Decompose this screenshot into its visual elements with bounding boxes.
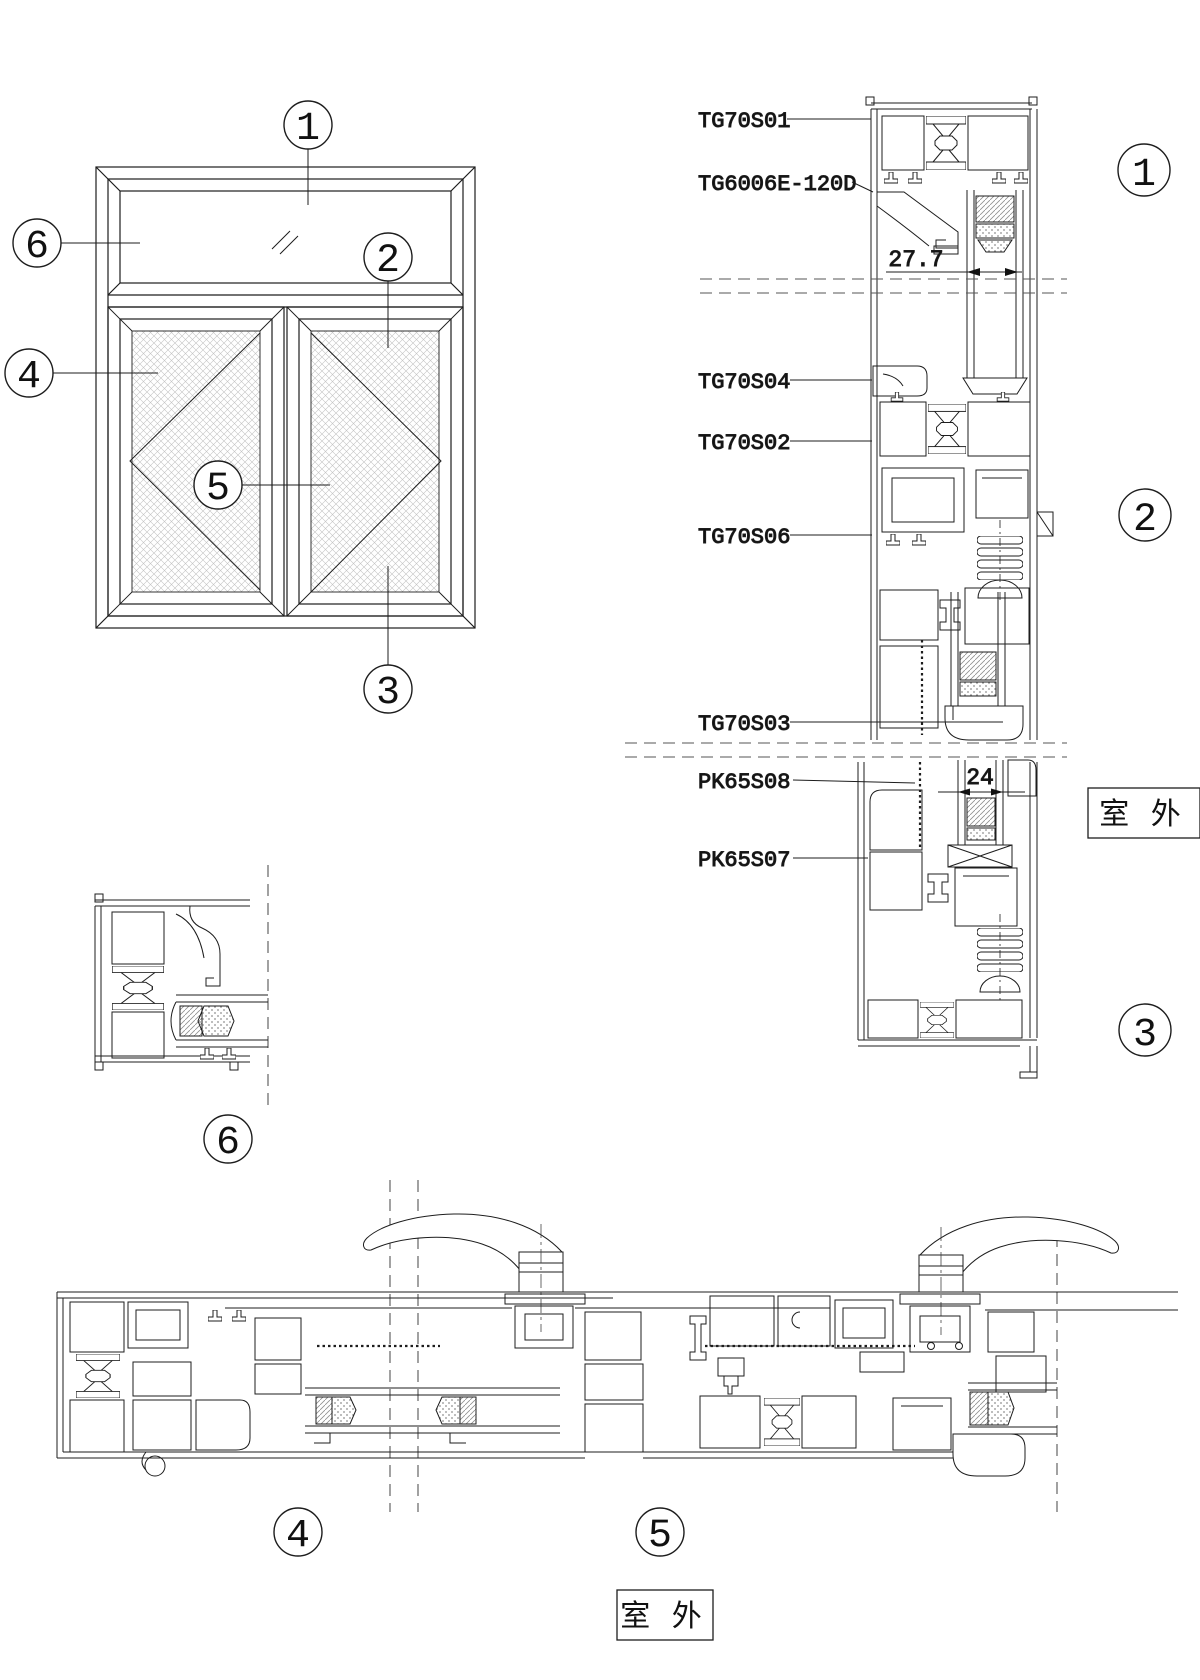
part-label-tg70s03: TG70S03 bbox=[698, 712, 790, 737]
part-label-pk65s07: PK65S07 bbox=[698, 848, 790, 873]
bowtie-connector-2 bbox=[928, 874, 948, 902]
section-callout-1: 1 bbox=[1132, 153, 1156, 198]
window-elevation: 1 6 2 4 5 3 bbox=[5, 101, 475, 716]
drip-profile bbox=[877, 192, 958, 248]
hsec-callout-4: 4 bbox=[286, 1514, 310, 1559]
callout-5: 5 bbox=[206, 467, 230, 512]
section-callout-3: 3 bbox=[1133, 1013, 1157, 1058]
espag-roller bbox=[145, 1456, 165, 1476]
outdoor-label-right: 室 外 bbox=[1099, 797, 1187, 832]
callout-4: 4 bbox=[17, 355, 41, 400]
cover-profile bbox=[1008, 760, 1036, 796]
part-label-tg70s01: TG70S01 bbox=[698, 109, 790, 134]
part-labels: TG70S01 TG6006E-120D TG70S04 TG70S02 TG7… bbox=[698, 109, 1003, 873]
part-label-tg70s02: TG70S02 bbox=[698, 431, 790, 456]
dim-24-text: 24 bbox=[966, 765, 994, 791]
hsec-center-mullion bbox=[585, 1296, 856, 1452]
hsec-bottom-rail bbox=[953, 1434, 1025, 1476]
vsec-annotations: 室 外 1 2 3 bbox=[1088, 144, 1200, 1058]
part-label-tg6006e-120d: TG6006E-120D bbox=[698, 172, 856, 197]
break-lines-lower bbox=[625, 743, 1067, 757]
callout-6: 6 bbox=[25, 225, 49, 270]
vertical-section: TG70S01 TG6006E-120D TG70S04 TG70S02 TG7… bbox=[625, 97, 1200, 1078]
part-label-tg70s06: TG70S06 bbox=[698, 525, 790, 550]
left-sash-glass bbox=[132, 331, 260, 592]
hsec-glass-1 bbox=[305, 1388, 560, 1443]
part-label-pk65s08: PK65S08 bbox=[698, 770, 790, 795]
part-label-tg70s04: TG70S04 bbox=[698, 370, 790, 395]
cad-sheet: 1 6 2 4 5 3 TG70S01 TG6006E-120D TG70S bbox=[0, 0, 1200, 1680]
fixed-light bbox=[108, 179, 463, 307]
bottom-rail bbox=[945, 706, 1023, 740]
right-sash bbox=[287, 307, 463, 616]
vsec-middle bbox=[873, 366, 1053, 740]
clip-profile bbox=[873, 366, 927, 396]
vsec-lower: 24 bbox=[858, 760, 1037, 1078]
left-sash bbox=[108, 307, 284, 616]
callout-2: 2 bbox=[376, 239, 400, 284]
vsec-glass-upper bbox=[963, 190, 1027, 394]
right-sash-glass bbox=[311, 331, 439, 592]
callout-3: 3 bbox=[376, 671, 400, 716]
section-callout-2: 2 bbox=[1133, 498, 1157, 543]
detail-6-section: 6 bbox=[95, 865, 268, 1166]
handle-2 bbox=[900, 1217, 1118, 1352]
horizontal-section: 4 5 室 外 bbox=[57, 1180, 1178, 1640]
detail6-curve-profile bbox=[176, 906, 220, 986]
hsec-annotations: 4 5 室 外 bbox=[274, 1508, 713, 1640]
glazing-block-x bbox=[948, 845, 1012, 867]
bowtie-connector bbox=[940, 600, 960, 630]
handle-1 bbox=[364, 1214, 585, 1348]
hsec-left-frame bbox=[57, 1292, 301, 1476]
callout-1: 1 bbox=[296, 107, 320, 152]
outdoor-label-bottom: 室 外 bbox=[620, 1599, 708, 1634]
detail6-callout: 6 bbox=[216, 1121, 240, 1166]
dim-27-7-text: 27.7 bbox=[888, 247, 943, 273]
hsec-right-sash bbox=[835, 1300, 1057, 1476]
hsec-callout-5: 5 bbox=[648, 1514, 672, 1559]
break-lines-upper bbox=[700, 279, 1067, 293]
cad-drawing-canvas: 1 6 2 4 5 3 TG70S01 TG6006E-120D TG70S bbox=[0, 0, 1200, 1680]
